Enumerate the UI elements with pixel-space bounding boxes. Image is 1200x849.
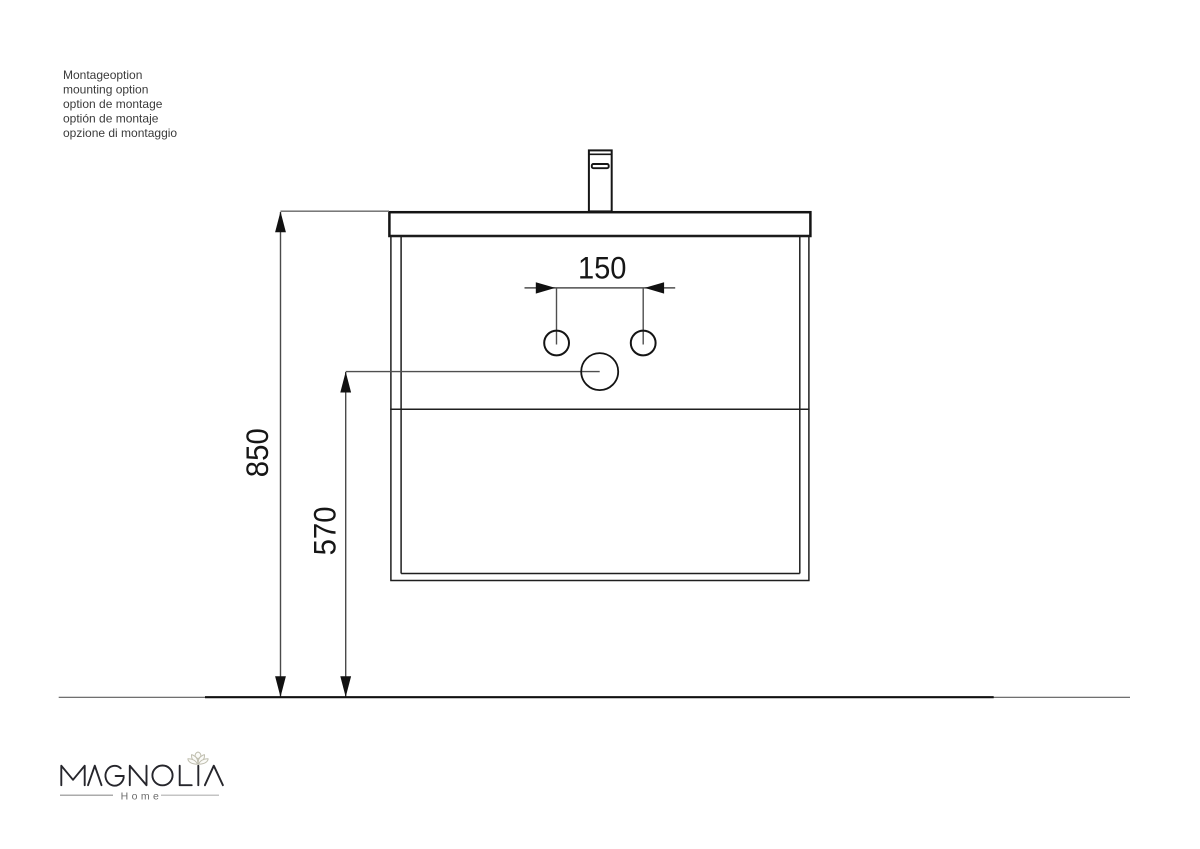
svg-text:mounting option: mounting option [63,83,148,97]
svg-text:option de montage: option de montage [63,97,163,111]
svg-text:Montageoption: Montageoption [63,68,142,82]
svg-text:850: 850 [239,428,275,477]
svg-text:Home: Home [121,790,163,802]
svg-text:570: 570 [306,506,342,555]
svg-text:optión de montaje: optión de montaje [63,112,159,126]
svg-text:opzione di montaggio: opzione di montaggio [63,126,177,140]
svg-text:150: 150 [578,250,627,286]
